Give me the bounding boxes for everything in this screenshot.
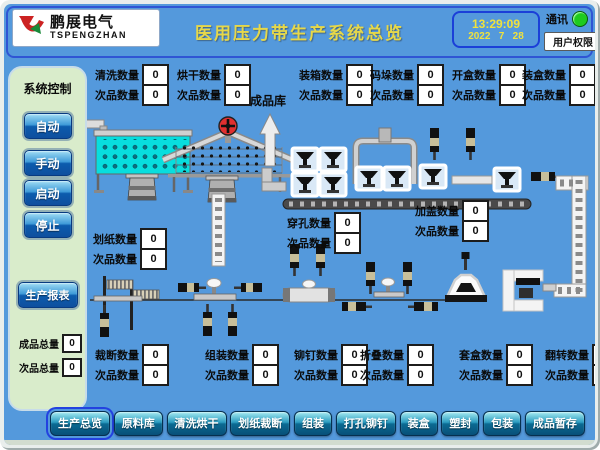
counter-label: 加盖数量 (412, 203, 459, 219)
total-finished-value: 0 (62, 334, 82, 353)
production-report-button[interactable]: 生产报表 (18, 282, 78, 308)
defect-value: 0 (142, 364, 169, 386)
nav-tab-boxing[interactable]: 装盒 (400, 411, 438, 436)
counter-paper-scoring: 划纸数量0 次品数量0 (90, 228, 167, 270)
total-defect-label: 次品总量 (15, 360, 59, 375)
nav-tab-punch-rivet[interactable]: 打孔铆钉 (336, 411, 396, 436)
counter-label: 穿孔数量 (284, 215, 331, 231)
system-control-panel: 系统控制 自动 手动 启动 停止 生产报表 成品总量 0 次品总量 0 (8, 66, 87, 411)
defect-label: 次品数量 (542, 367, 589, 383)
counter-cleaning: 清洗数量0 次品数量0 (92, 64, 169, 106)
counter-label: 折叠数量 (357, 347, 404, 363)
counter-drying: 烘干数量0 次品数量0 (174, 64, 251, 106)
defect-value: 0 (592, 364, 595, 386)
counter-label: 烘干数量 (174, 67, 221, 83)
counter-box-packing: 装盒数量0 次品数量0 (519, 64, 595, 106)
defect-label: 次品数量 (92, 87, 139, 103)
counter-label: 翻转数量 (542, 347, 589, 363)
sealing-station-graphic (503, 270, 556, 311)
counter-label: 划纸数量 (90, 231, 137, 247)
counter-cutting: 裁断数量0 次品数量0 (92, 344, 169, 386)
defect-value: 0 (224, 84, 251, 106)
defect-value: 0 (506, 364, 533, 386)
total-defect-row: 次品总量 0 (15, 358, 82, 377)
counter-label: 清洗数量 (92, 67, 139, 83)
counter-label: 装盒数量 (519, 67, 566, 83)
assembly-station-graphic (178, 279, 262, 337)
defect-value: 0 (334, 232, 361, 254)
date-value: 2022 7 28 (468, 31, 524, 42)
conveyor-belt-top (283, 199, 531, 209)
drop-chute-left (212, 194, 225, 266)
defect-label: 次品数量 (357, 367, 404, 383)
auto-mode-button[interactable]: 自动 (24, 113, 72, 139)
nav-tab-sealing[interactable]: 塑封 (441, 411, 479, 436)
hmi-screen: 鹏展电气 TSPENGZHAN 医用压力带生产系统总览 13:29:09 202… (4, 4, 595, 445)
start-button[interactable]: 启动 (24, 180, 72, 206)
infeed-corner (262, 168, 286, 191)
defect-value: 0 (462, 220, 489, 242)
total-finished-label: 成品总量 (15, 336, 59, 351)
counter-value: 0 (334, 212, 361, 234)
defect-label: 次品数量 (296, 87, 343, 103)
page-title: 医用压力带生产系统总览 (124, 19, 475, 44)
counter-value: 0 (569, 64, 595, 86)
defect-label: 次品数量 (449, 87, 496, 103)
brand-logo-icon (17, 13, 47, 43)
counter-value: 0 (252, 344, 279, 366)
counter-assembly: 组装数量0 次品数量0 (202, 344, 279, 386)
counter-value: 0 (506, 344, 533, 366)
counter-label: 码垛数量 (367, 67, 414, 83)
counter-label: 铆钉数量 (291, 347, 338, 363)
counter-value: 0 (140, 228, 167, 250)
counter-value: 0 (462, 200, 489, 222)
defect-label: 次品数量 (202, 367, 249, 383)
counter-palletizing: 码垛数量0 次品数量0 (367, 64, 444, 106)
counter-perforation: 穿孔数量0 次品数量0 (284, 212, 361, 254)
nav-tab-production-overview[interactable]: 生产总览 (50, 411, 110, 436)
finished-goods-arrow (260, 114, 280, 166)
counter-value: 0 (142, 344, 169, 366)
finished-goods-warehouse-label: 成品库 (250, 92, 286, 109)
counter-label: 组装数量 (202, 347, 249, 363)
pusher-cylinder (531, 172, 563, 181)
cleaning-tank-graphic (86, 120, 193, 200)
brand-name-en: TSPENGZHAN (50, 31, 127, 40)
defect-label: 次品数量 (456, 367, 503, 383)
counter-boxing: 装箱数量0 次品数量0 (296, 64, 373, 106)
counter-value: 0 (417, 64, 444, 86)
bottom-strip (4, 440, 595, 445)
defect-label: 次品数量 (412, 223, 459, 239)
comm-status-indicator (572, 11, 588, 27)
hmi-bezel: 鹏展电气 TSPENGZHAN 医用压力带生产系统总览 13:29:09 202… (0, 0, 600, 450)
counter-capping: 加盖数量0 次品数量0 (412, 200, 489, 242)
fan-icon (219, 117, 237, 135)
counter-flipping: 翻转数量0 次品数量0 (542, 344, 595, 386)
defect-value: 0 (252, 364, 279, 386)
total-finished-row: 成品总量 0 (15, 334, 82, 353)
drying-oven-graphic (163, 117, 293, 202)
defect-label: 次品数量 (519, 87, 566, 103)
defect-value: 0 (417, 84, 444, 106)
defect-label: 次品数量 (90, 251, 137, 267)
counter-label: 套盒数量 (456, 347, 503, 363)
comm-status: 通讯 (546, 11, 588, 27)
defect-label: 次品数量 (367, 87, 414, 103)
counter-box-set: 套盒数量0 次品数量0 (456, 344, 533, 386)
rivet-station-graphic (342, 262, 438, 311)
counter-label: 装箱数量 (296, 67, 343, 83)
paper-cutter-graphic (94, 276, 159, 337)
defect-label: 次品数量 (291, 367, 338, 383)
nav-tab-clean-dry[interactable]: 清洗烘干 (167, 411, 227, 436)
counter-value: 0 (407, 344, 434, 366)
defect-value: 0 (407, 364, 434, 386)
time-value: 13:29:09 (472, 17, 520, 31)
defect-value: 0 (569, 84, 595, 106)
panel-title: 系统控制 (10, 80, 85, 97)
counter-label: 开盒数量 (449, 67, 496, 83)
user-permission-button[interactable]: 用户权限 (544, 32, 595, 51)
defect-value: 0 (140, 248, 167, 270)
counter-value: 0 (592, 344, 595, 366)
nav-tab-assembly[interactable]: 组装 (294, 411, 332, 436)
nav-tab-scoring-cutting[interactable]: 划纸裁断 (230, 411, 290, 436)
drop-chute-right (554, 176, 588, 297)
counter-label: 裁断数量 (92, 347, 139, 363)
comm-label: 通讯 (546, 11, 568, 27)
nav-tab-product-storage[interactable]: 成品暂存 (525, 411, 585, 436)
nav-tab-packaging[interactable]: 包装 (483, 411, 521, 436)
stop-button[interactable]: 停止 (24, 212, 72, 238)
clock-display: 13:29:09 2022 7 28 (452, 11, 540, 48)
nav-bar: 生产总览 原料库 清洗烘干 划纸裁断 组装 打孔铆钉 装盒 塑封 包装 成品暂存 (50, 410, 585, 436)
nav-tab-raw-material[interactable]: 原料库 (114, 411, 163, 436)
defect-label: 次品数量 (92, 367, 139, 383)
robot-gantry (356, 128, 414, 184)
counter-value: 0 (224, 64, 251, 86)
defect-label: 次品数量 (284, 235, 331, 251)
manual-mode-button[interactable]: 手动 (24, 150, 72, 176)
counter-folding: 折叠数量0 次品数量0 (357, 344, 434, 386)
total-defect-value: 0 (62, 358, 82, 377)
brand-name-cn: 鹏展电气 (50, 15, 127, 31)
counter-box-opening: 开盒数量0 次品数量0 (449, 64, 526, 106)
defect-value: 0 (142, 84, 169, 106)
defect-label: 次品数量 (174, 87, 221, 103)
counter-value: 0 (142, 64, 169, 86)
press-station-graphic (445, 252, 487, 302)
